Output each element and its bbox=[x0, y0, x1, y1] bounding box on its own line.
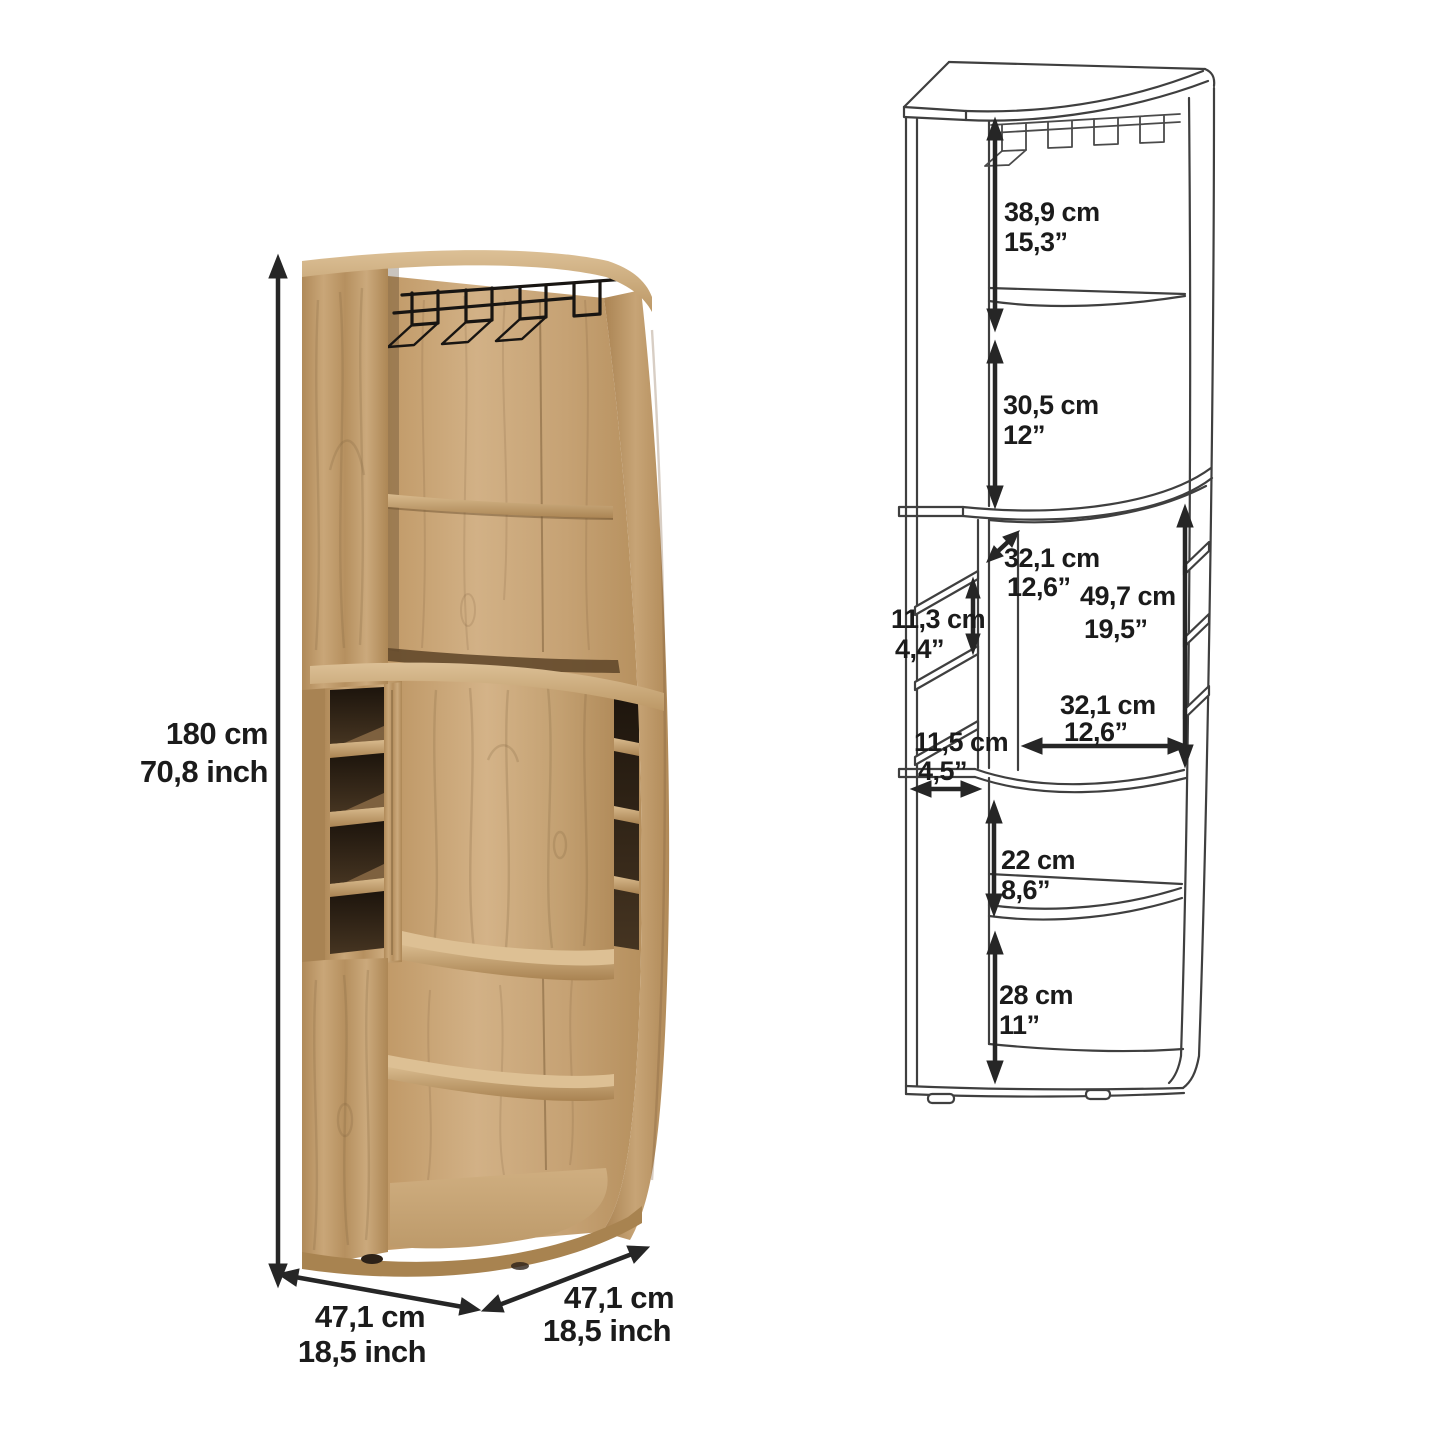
arrowhead-up bbox=[269, 255, 287, 278]
depth-diag-cm: 32,1 cm bbox=[1004, 543, 1100, 573]
rack-section-in: 15,3” bbox=[1004, 227, 1068, 257]
depth-right-inch-label: 18,5 inch bbox=[543, 1313, 671, 1348]
height-dimension-line bbox=[269, 255, 287, 1287]
arrowhead bbox=[459, 1298, 480, 1315]
rack-section-cm: 38,9 cm bbox=[1004, 197, 1100, 227]
cubby-height-cm: 11,3 cm bbox=[891, 604, 985, 634]
arrowhead bbox=[482, 1295, 504, 1312]
wine-cubby-left-column bbox=[325, 681, 402, 967]
cabinet-foot bbox=[361, 1254, 383, 1264]
drawing-top bbox=[904, 62, 1214, 121]
center-panel bbox=[402, 681, 614, 954]
arrowhead bbox=[627, 1246, 649, 1263]
height-cm-label: 180 cm bbox=[166, 716, 268, 751]
cubby-width-cm: 11,5 cm bbox=[914, 727, 1008, 757]
sheet-canvas: 180 cm 70,8 inch 47,1 cm 18,5 inch 47,1 … bbox=[0, 0, 1445, 1445]
height-inch-label: 70,8 inch bbox=[140, 754, 268, 789]
middle-height-cm: 49,7 cm bbox=[1080, 581, 1176, 611]
middle-width-in: 12,6” bbox=[1064, 717, 1128, 747]
drawing-base bbox=[906, 1086, 1184, 1103]
drawing-foot bbox=[1086, 1090, 1110, 1099]
drawing-middle-divider-top bbox=[899, 468, 1212, 522]
cubby-opening bbox=[330, 890, 384, 954]
depth-right-cm-label: 47,1 cm bbox=[564, 1280, 674, 1315]
drawing-glass-rack bbox=[985, 114, 1180, 166]
cubby-width-in: 4,5” bbox=[918, 756, 967, 786]
lower-shelf-cm: 22 cm bbox=[1001, 845, 1075, 875]
drawing-dimension-labels: 38,9 cm 15,3” 30,5 cm 12” 32,1 cm 12,6” … bbox=[891, 197, 1176, 1040]
depth-diag-in: 12,6” bbox=[1007, 572, 1071, 602]
bottom-shelf-in: 11” bbox=[999, 1010, 1040, 1040]
middle-height-in: 19,5” bbox=[1084, 614, 1148, 644]
cubby-height-in: 4,4” bbox=[895, 634, 944, 664]
dimension-sheet: 180 cm 70,8 inch 47,1 cm 18,5 inch 47,1 … bbox=[0, 0, 1445, 1445]
lower-shelf-in: 8,6” bbox=[1001, 875, 1050, 905]
bottom-shelf-cm: 28 cm bbox=[999, 980, 1073, 1010]
depth-left-inch-label: 18,5 inch bbox=[298, 1334, 426, 1369]
drawing-foot bbox=[928, 1094, 954, 1103]
wine-cubby-right-column bbox=[614, 686, 639, 950]
depth-left-cm-label: 47,1 cm bbox=[315, 1299, 425, 1334]
product-photo bbox=[302, 250, 669, 1277]
cabinet-foot bbox=[511, 1262, 529, 1270]
middle-width-cm: 32,1 cm bbox=[1060, 690, 1156, 720]
upper-shelf-in: 12” bbox=[1003, 420, 1045, 450]
drawing-upper-shelf bbox=[989, 288, 1185, 306]
upper-shelf-cm: 30,5 cm bbox=[1003, 390, 1099, 420]
